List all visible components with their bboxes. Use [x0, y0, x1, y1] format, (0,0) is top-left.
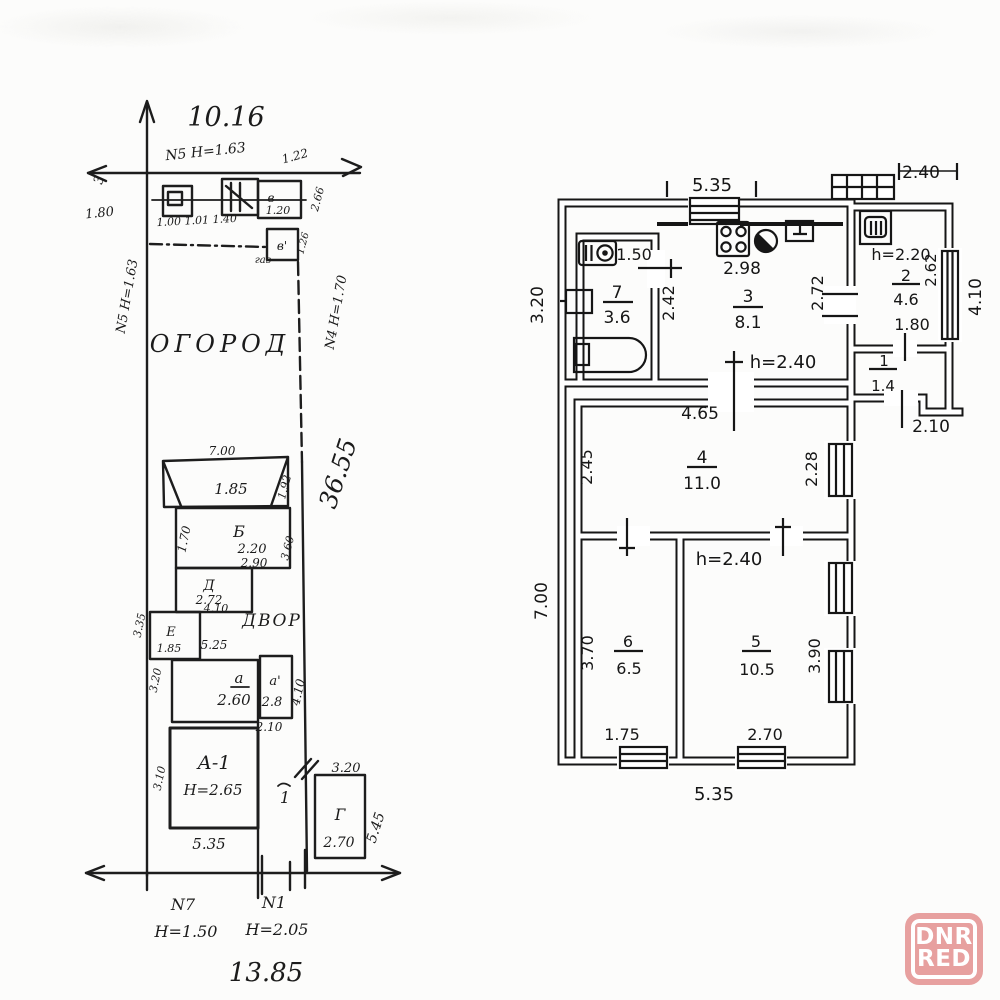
sink-icon: [750, 230, 777, 257]
room1-num-label: 1: [879, 352, 889, 370]
bldg-a-label: а: [235, 669, 244, 687]
dim-g-right-label: 5.45: [364, 810, 389, 845]
dim-3655-label: 36.55: [313, 435, 363, 512]
right-boundary-dashed: [298, 262, 302, 462]
dim-annex-right-label: 4.10: [966, 278, 986, 316]
dim-stove-label: 2.98: [723, 259, 761, 279]
bldg-a-h-label: 2.60: [216, 691, 251, 709]
shed-v-label: в: [268, 191, 275, 205]
garden-label: ОГОРОД: [150, 330, 291, 358]
site-top-width-label: 10.16: [187, 102, 264, 133]
plans-svg: 10.16 N5 H=1.63 1.22 3 1.80 1.00 1.01 1.…: [0, 0, 1000, 1000]
room2-area-label: 4.6: [893, 290, 918, 309]
height-main-label: h=2.40: [750, 352, 817, 373]
dim-left-lower-label: 7.00: [532, 582, 552, 620]
shed-box-1: [163, 186, 192, 216]
dim-266-label: 2.66: [308, 186, 327, 214]
room7-num-label: 7: [612, 283, 623, 303]
dim-a2-bottom-label: 2.10: [255, 720, 283, 734]
shed-v-dim-label: 1.20: [266, 204, 291, 217]
dim-room4-left-label: 2.45: [577, 449, 596, 485]
dim-room6-left-label: 3.70: [578, 635, 597, 671]
dim-room5-right-label: 3.90: [805, 638, 824, 674]
dim-left-upper-label: 3.20: [528, 286, 548, 324]
room5-num-label: 5: [751, 632, 761, 651]
room2-num-label: 2: [901, 266, 911, 285]
right-boundary-solid: [302, 462, 307, 871]
room6-num-label: 6: [623, 632, 633, 651]
house-width-label: 5.35: [192, 835, 225, 853]
dim-320-left-label: 3.20: [147, 667, 165, 694]
dim-122-label: 1.22: [280, 146, 309, 166]
bldg-g-label: Г: [334, 805, 347, 824]
site-plan: 10.16 N5 H=1.63 1.22 3 1.80 1.00 1.01 1.…: [84, 101, 400, 988]
watermark-line2: RED: [917, 949, 971, 971]
yard-label: ДВОР: [241, 611, 302, 631]
bldg-b-bottom-label: 2.90: [240, 556, 268, 570]
dim-annex-top-label: 2.40: [902, 163, 940, 183]
dnr-red-watermark: DNR RED: [905, 913, 983, 985]
label-1: 1: [280, 788, 290, 807]
bldg-b-label: Б: [232, 522, 245, 541]
shed-box-2: [222, 179, 258, 215]
dim-room4-top-label: 4.65: [681, 404, 719, 424]
shed1-right-label: 1.92: [275, 474, 294, 501]
marker-n7-h-label: Н=1.50: [154, 922, 218, 941]
dim-left-gate-label: 3: [91, 174, 108, 186]
dims-row-label: 1.00 1.01 1.40: [156, 212, 237, 229]
marker-n5-top-label: N5 H=1.63: [164, 140, 247, 164]
dim-room4-right-label: 2.28: [802, 451, 821, 487]
building-a1-house: [170, 728, 258, 828]
dim-wall-7-3-label: 2.42: [659, 285, 678, 321]
boundary-right-label: N4 H=1.70: [322, 274, 350, 351]
marker-n1-label: N1: [261, 893, 286, 912]
water-heater-icon: [579, 241, 616, 265]
bldg-g-h-label: 2.70: [322, 835, 354, 851]
house-label: А-1: [196, 752, 231, 774]
room4-area-label: 11.0: [683, 474, 721, 494]
room6-area-label: 6.5: [616, 659, 641, 678]
bldg-b-right-label: 3.60: [278, 535, 297, 562]
bldg-a2-label: а': [269, 674, 280, 689]
room3-num-label: 3: [743, 287, 754, 307]
vent-grid-icon: [832, 175, 894, 199]
bathtub-icon: [574, 338, 646, 372]
boundary-left-label: N5 H=1.63: [113, 258, 141, 335]
site-bottom-width-label: 13.85: [229, 958, 303, 988]
gas-label: газ: [255, 255, 271, 266]
dim-under-d-label: 4.10: [203, 602, 229, 615]
setback-dashdot-line: [150, 244, 266, 247]
dim-room6-bottom-label: 1.75: [604, 725, 640, 744]
dim-e-right-label: 5.25: [201, 638, 228, 652]
bldg-e-h-label: 1.85: [157, 642, 182, 655]
floor-plan: 5.35 2.40 3.20 7.00 1.50 7 3.6 2.42 2.98…: [528, 163, 986, 805]
marker-n1-h-label: Н=2.05: [245, 920, 309, 939]
marker-n7-label: N7: [170, 895, 196, 914]
shed-v2-label: в': [277, 239, 287, 253]
room7-area-label: 3.6: [603, 308, 630, 328]
room4-num-label: 4: [697, 448, 708, 468]
bldg-a2-h-label: 2.8: [261, 695, 283, 710]
room1-area-label: 1.4: [871, 377, 895, 395]
house-h-label: Н=2.65: [182, 781, 242, 799]
dim-annex-bottom-label: 2.10: [912, 417, 950, 437]
agv-boiler-icon: [860, 211, 891, 244]
bldg-b-h-label: 2.20: [237, 542, 267, 557]
bldg-b-left-label: 1.70: [174, 524, 193, 553]
dim-annex-window-label: 2.62: [922, 253, 940, 286]
scanned-plan-page: 10.16 N5 H=1.63 1.22 3 1.80 1.00 1.01 1.…: [0, 0, 1000, 1000]
bldg-d-label: Д: [202, 578, 215, 594]
dim-room5-bottom-label: 2.70: [747, 725, 783, 744]
room3-area-label: 8.1: [734, 313, 761, 333]
dim-heater-label: 1.50: [616, 245, 652, 264]
dim-room3-right-label: 2.72: [808, 275, 827, 311]
shed1-width-label: 7.00: [209, 444, 236, 458]
dim-310-label: 3.10: [151, 765, 169, 792]
dim-top-width-label: 5.35: [692, 175, 732, 196]
room5-area-label: 10.5: [739, 660, 775, 679]
height-mid-label: h=2.40: [696, 549, 763, 570]
dim-bottom-width-label: 5.35: [694, 784, 734, 805]
dim-gate-320-label: 3.20: [332, 761, 361, 776]
dim-room2-width-label: 1.80: [894, 315, 930, 334]
bldg-e-label: Е: [165, 625, 176, 640]
shed1-h-label: 1.85: [214, 480, 247, 498]
label-1-tilde: [278, 784, 290, 787]
dim-180-label: 1.80: [84, 205, 114, 223]
